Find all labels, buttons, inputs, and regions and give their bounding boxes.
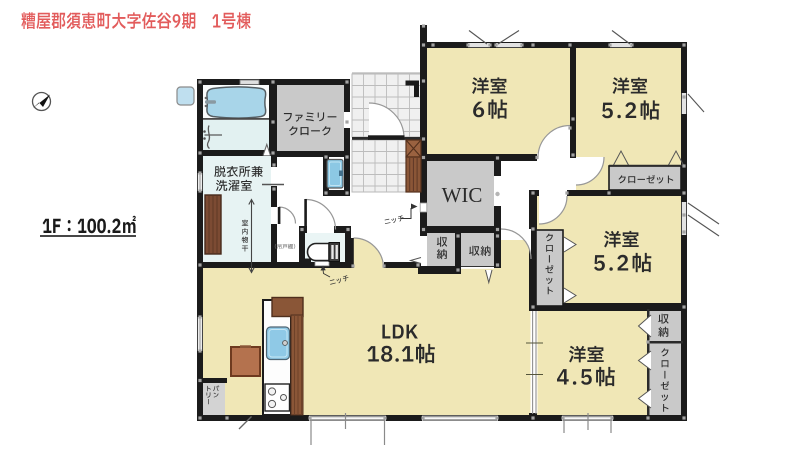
svg-text:WIC: WIC <box>442 183 483 207</box>
